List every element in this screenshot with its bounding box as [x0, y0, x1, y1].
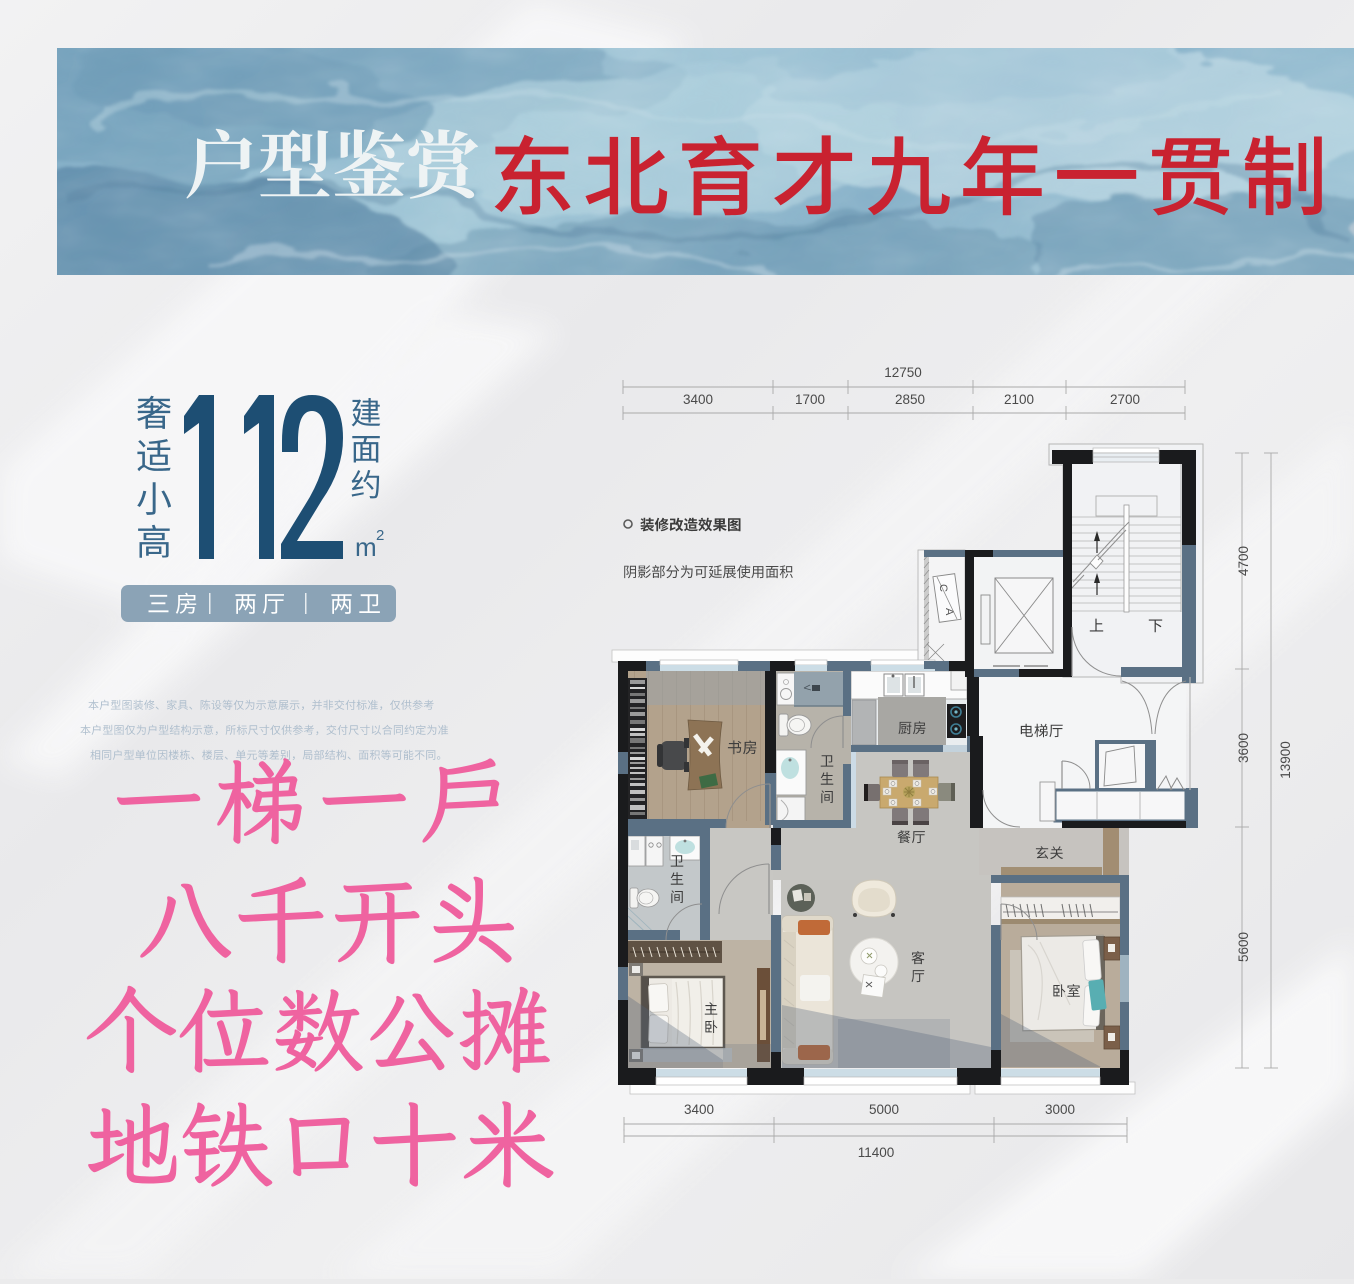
svg-text:C: C — [937, 584, 949, 592]
svg-text:2: 2 — [376, 527, 384, 544]
svg-text:11400: 11400 — [858, 1145, 895, 1160]
svg-text:13900: 13900 — [1278, 741, 1293, 779]
svg-text:2850: 2850 — [895, 392, 925, 407]
svg-text:1700: 1700 — [795, 392, 825, 407]
svg-text:3400: 3400 — [684, 1102, 714, 1117]
svg-text:5600: 5600 — [1236, 932, 1251, 962]
svg-text:m: m — [355, 532, 377, 562]
svg-text:3000: 3000 — [1045, 1102, 1075, 1117]
svg-text:12750: 12750 — [884, 365, 922, 380]
svg-text:2700: 2700 — [1110, 392, 1140, 407]
svg-text:A: A — [943, 608, 955, 616]
svg-text:5000: 5000 — [869, 1102, 899, 1117]
svg-text:3600: 3600 — [1236, 733, 1251, 763]
svg-text:4700: 4700 — [1236, 546, 1251, 576]
svg-text:2100: 2100 — [1004, 392, 1034, 407]
svg-text:3400: 3400 — [683, 392, 713, 407]
